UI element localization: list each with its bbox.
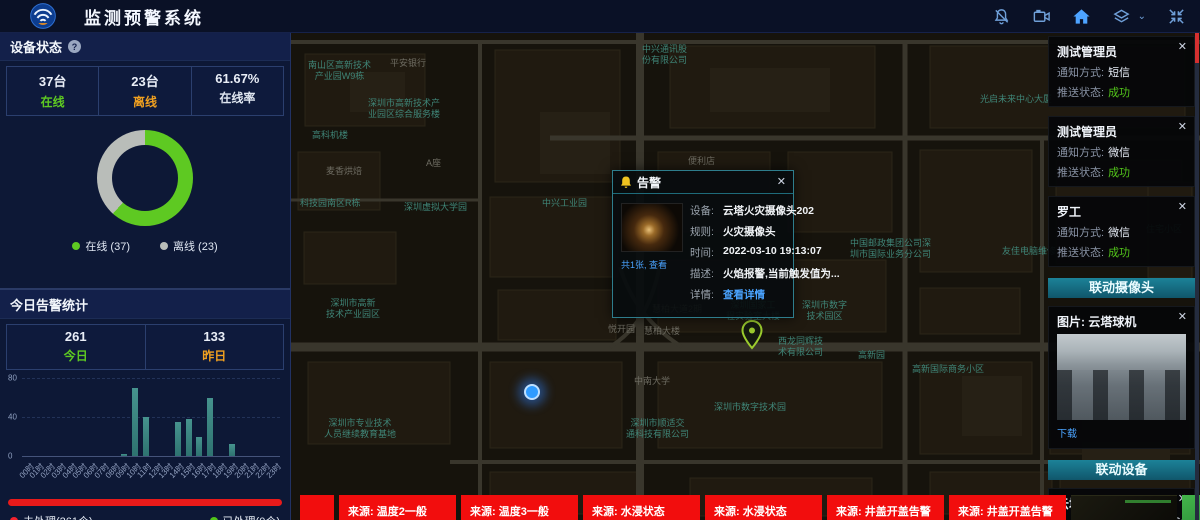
today-alerts-table: 261今日133昨日: [6, 324, 284, 370]
notification-row: 推送状态:成功: [1057, 244, 1186, 260]
monitoring-dashboard: 南山区高新技术 产业园W9栋平安银行深圳市高新技术产 业园区综合服务楼中兴通讯股…: [0, 0, 1200, 520]
notification-title: 测试管理员: [1057, 43, 1186, 60]
processed-legend-row: 未处理(261个) 已处理(0个): [0, 513, 290, 520]
alert-detail-row: 时间:2022-03-10 19:13:07: [690, 245, 840, 260]
alert-card-stub[interactable]: [300, 495, 334, 520]
today-stat-cell-label: 昨日: [146, 347, 284, 364]
alert-thumbnail-dark[interactable]: [1071, 495, 1177, 520]
alert-detail-row: 描述:火焰报警,当前触发值为...: [690, 266, 840, 281]
y-axis-tick: 40: [8, 413, 17, 422]
section-today-alerts: 今日告警统计: [0, 288, 290, 319]
download-link[interactable]: 下载: [1057, 425, 1077, 440]
snapshot-view-link[interactable]: 共1张, 查看: [621, 258, 681, 271]
today-stat-cell: 261今日: [7, 325, 145, 369]
notification-row-value: 微信: [1108, 224, 1130, 240]
close-icon[interactable]: ✕: [777, 177, 786, 188]
device-stat-cell-value: 37台: [7, 71, 98, 90]
alert-bar[interactable]: [196, 437, 202, 457]
notification-row-label: 通知方式:: [1057, 64, 1104, 80]
alert-source-card[interactable]: 来源: 水浸状态: [705, 495, 822, 520]
alert-detail-value: 2022-03-10 19:13:07: [723, 245, 822, 260]
y-axis-tick: 80: [8, 374, 17, 383]
notification-row: 通知方式:微信: [1057, 144, 1186, 160]
section-device-status: 设备状态 ?: [0, 32, 290, 61]
legend-item: 在线 (37): [72, 238, 130, 254]
unprocessed-label: 未处理(261个): [23, 513, 93, 520]
alert-detail-row: 设备:云塔火灾摄像头202: [690, 203, 840, 218]
hourly-alert-bar-chart: 04080 00时01时02时03时04时05时06时07时08时09时10时1…: [8, 378, 280, 491]
linked-devices-header[interactable]: 联动设备: [1048, 460, 1195, 480]
notification-title: 罗工: [1057, 203, 1186, 220]
camera-snapshot-image[interactable]: [1057, 334, 1186, 420]
y-axis-tick: 0: [8, 452, 12, 461]
device-stat-cell: 23台离线: [98, 67, 190, 115]
device-stat-cell-label: 在线: [7, 93, 98, 110]
alarm-bell-icon: [620, 176, 632, 189]
legend-label: 离线 (23): [173, 238, 218, 254]
view-details-link[interactable]: 查看详情: [723, 287, 765, 302]
device-stat-cell: 37台在线: [7, 67, 98, 115]
device-status-donut-chart: [97, 130, 193, 226]
notification-card: 测试管理员✕通知方式:短信推送状态:成功: [1048, 36, 1195, 107]
bar-slot: [119, 454, 130, 456]
notification-row-value: 成功: [1108, 244, 1130, 260]
header-toolbar: ⌄: [992, 0, 1186, 32]
app-logo-icon: [30, 3, 56, 29]
notification-row-label: 推送状态:: [1057, 84, 1104, 100]
left-stats-panel: 设备状态 ? 37台在线23台离线61.67%在线率 在线 (37)离线 (23…: [0, 32, 291, 520]
bar-slot: [183, 419, 194, 456]
today-stat-cell-value: 133: [146, 329, 284, 344]
processed-label: 已处理(0个): [223, 513, 280, 520]
close-icon[interactable]: ✕: [1178, 202, 1187, 213]
alert-detail-label: 描述:: [690, 266, 723, 281]
bar-slot: [173, 422, 184, 456]
right-panel-scrollbar[interactable]: [1195, 33, 1199, 520]
alert-source-card[interactable]: 来源: 温度2一般: [339, 495, 456, 520]
device-marker-blue[interactable]: [524, 384, 540, 400]
alert-detail-label: 设备:: [690, 203, 723, 218]
notification-row: 推送状态:成功: [1057, 84, 1186, 100]
alert-snapshot-image[interactable]: [621, 203, 683, 252]
notification-row-value: 微信: [1108, 144, 1130, 160]
alert-bar[interactable]: [121, 454, 127, 456]
bars-layer: [22, 378, 280, 456]
notification-row-label: 推送状态:: [1057, 164, 1104, 180]
donut-legend: 在线 (37)离线 (23): [0, 238, 290, 254]
notification-row: 推送状态:成功: [1057, 164, 1186, 180]
alert-popup-title: 告警: [637, 174, 777, 191]
alert-source-card[interactable]: 来源: 温度3一般: [461, 495, 578, 520]
notification-row-value: 成功: [1108, 84, 1130, 100]
alert-detail-label: 时间:: [690, 245, 723, 260]
notification-title: 测试管理员: [1057, 123, 1186, 140]
alert-detail-row: 规则:火灾摄像头: [690, 224, 840, 239]
today-stat-cell-value: 261: [7, 329, 145, 344]
notification-list: 测试管理员✕通知方式:短信推送状态:成功测试管理员✕通知方式:微信推送状态:成功…: [1048, 36, 1195, 267]
alert-bar[interactable]: [207, 398, 213, 457]
bell-off-icon[interactable]: [992, 7, 1011, 26]
device-status-table: 37台在线23台离线61.67%在线率: [6, 66, 284, 116]
notification-card: 罗工✕通知方式:微信推送状态:成功: [1048, 196, 1195, 267]
close-icon[interactable]: ✕: [1178, 122, 1187, 133]
legend-item: 离线 (23): [160, 238, 218, 254]
right-linkage-panel: 测试管理员✕通知方式:短信推送状态:成功测试管理员✕通知方式:微信推送状态:成功…: [1048, 32, 1195, 520]
unprocessed-progress-bar: [8, 499, 282, 506]
notification-row-label: 通知方式:: [1057, 224, 1104, 240]
alert-detail-value: 云塔火灾摄像头202: [723, 203, 814, 218]
alert-detail-value: 火灾摄像头: [723, 224, 776, 239]
layers-icon[interactable]: [1112, 7, 1131, 26]
bottom-alert-strip: 来源: 温度2一般来源: 温度3一般来源: 水浸状态来源: 水浸状态来源: 井盖…: [300, 495, 1200, 520]
device-stat-cell-label: 离线: [99, 93, 190, 110]
alert-detail-row: 详情:查看详情: [690, 287, 840, 302]
alert-source-card[interactable]: 来源: 井盖开盖告警: [827, 495, 944, 520]
app-header: 监测预警系统: [0, 0, 1200, 33]
alert-bar[interactable]: [132, 388, 138, 456]
close-icon[interactable]: ✕: [1178, 312, 1187, 323]
alert-source-card[interactable]: 来源: 水浸状态: [583, 495, 700, 520]
alert-bar[interactable]: [229, 444, 235, 456]
alert-detail-value: 火焰报警,当前触发值为...: [723, 266, 840, 281]
home-icon[interactable]: [1072, 7, 1091, 26]
alert-detail-rows: 设备:云塔火灾摄像头202规则:火灾摄像头时间:2022-03-10 19:13…: [690, 203, 840, 308]
camera-card-title: 图片: 云塔球机: [1057, 313, 1186, 330]
notification-row: 通知方式:微信: [1057, 224, 1186, 240]
device-stat-cell-label: 在线率: [192, 89, 283, 106]
alert-bar[interactable]: [143, 417, 149, 456]
notification-row: 通知方式:短信: [1057, 64, 1186, 80]
alert-bar[interactable]: [186, 419, 192, 456]
today-stat-cell: 133昨日: [145, 325, 284, 369]
today-stat-cell-label: 今日: [7, 347, 145, 364]
bar-slot: [140, 417, 151, 456]
device-stat-cell-value: 23台: [99, 71, 190, 90]
help-icon[interactable]: ?: [68, 40, 81, 53]
linked-camera-header[interactable]: 联动摄像头: [1048, 278, 1195, 298]
alert-detail-label: 详情:: [690, 287, 723, 302]
legend-dot: [72, 242, 80, 250]
alert-popup-body: 共1张, 查看 设备:云塔火灾摄像头202规则:火灾摄像头时间:2022-03-…: [613, 194, 793, 317]
alert-popup: 告警 ✕ 共1张, 查看 设备:云塔火灾摄像头202规则:火灾摄像头时间:202…: [612, 170, 794, 318]
legend-label: 在线 (37): [85, 238, 130, 254]
device-stat-cell-value: 61.67%: [192, 71, 283, 86]
alert-bar[interactable]: [175, 422, 181, 456]
exit-fullscreen-icon[interactable]: [1167, 7, 1186, 26]
scrollbar-thumb[interactable]: [1195, 33, 1199, 63]
device-stat-cell: 61.67%在线率: [191, 67, 283, 115]
x-slot: 23时: [269, 457, 280, 491]
bar-slot: [194, 437, 205, 457]
notification-row-label: 推送状态:: [1057, 244, 1104, 260]
today-alerts-title: 今日告警统计: [10, 295, 88, 314]
device-status-title: 设备状态: [10, 37, 62, 56]
bar-slot: [130, 388, 141, 456]
notification-row-value: 成功: [1108, 164, 1130, 180]
notification-card: 测试管理员✕通知方式:微信推送状态:成功: [1048, 116, 1195, 187]
close-icon[interactable]: ✕: [1178, 42, 1187, 53]
alert-location-pin[interactable]: [741, 320, 763, 350]
linked-camera-card: 图片: 云塔球机 ✕ 下载: [1048, 306, 1195, 449]
alert-popup-header: 告警 ✕: [613, 171, 793, 194]
chevron-down-icon[interactable]: ⌄: [1138, 11, 1146, 22]
alert-source-card[interactable]: 来源: 井盖开盖告警: [949, 495, 1066, 520]
notification-row-value: 短信: [1108, 64, 1130, 80]
legend-dot: [160, 242, 168, 250]
alert-detail-label: 规则:: [690, 224, 723, 239]
bar-slot: [226, 444, 237, 456]
page-title: 监测预警系统: [84, 4, 204, 29]
bar-slot: [205, 398, 216, 457]
video-camera-icon[interactable]: [1032, 7, 1051, 26]
notification-row-label: 通知方式:: [1057, 144, 1104, 160]
